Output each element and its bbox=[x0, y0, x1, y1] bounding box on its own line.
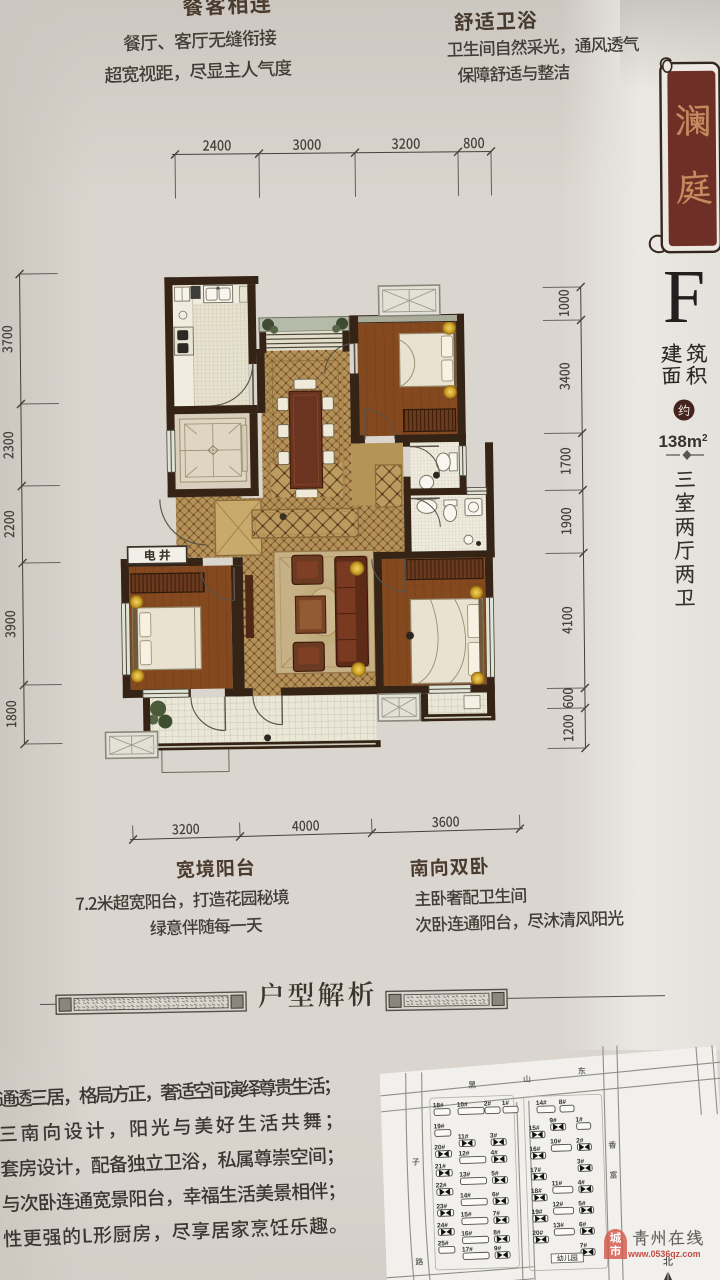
svg-text:138m2: 138m2 bbox=[658, 432, 707, 451]
svg-text:www.0536qz.com: www.0536qz.com bbox=[627, 1249, 701, 1259]
svg-text:F: F bbox=[663, 255, 705, 339]
